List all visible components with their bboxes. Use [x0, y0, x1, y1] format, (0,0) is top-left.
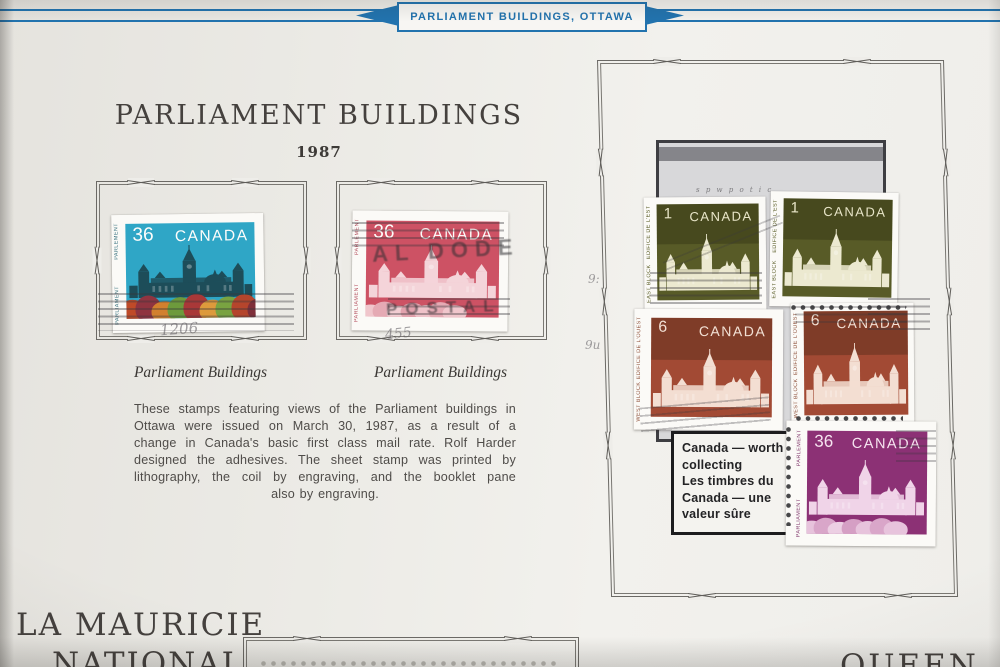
border-ornament-x — [505, 634, 531, 643]
border-ornament-x — [941, 149, 951, 175]
stamp-inscription-bottom: PARLIAMENT — [797, 498, 803, 537]
border-ornament-x — [472, 178, 498, 187]
album-frame-bottom — [243, 637, 579, 667]
stamp-denomination: 1 — [790, 199, 799, 216]
border-ornament-x — [472, 334, 498, 343]
description-line: These stamps featuring views of the Parl… — [134, 401, 516, 418]
trees-illustration — [807, 508, 928, 535]
next-section-title-line2: NATIONAL — [52, 646, 244, 667]
stamp-inscription-top: ÉDIFICE DE L'EST — [647, 205, 653, 259]
border-ornament-x — [128, 334, 154, 343]
parliament-building-illustration — [806, 343, 906, 412]
border-ornament-x — [885, 591, 911, 600]
faint-cancel-text: s p w p o t i c — [696, 186, 773, 194]
stamp-inscription-bottom: PARLIAMENT — [355, 283, 361, 322]
description-paragraph: These stamps featuring views of the Parl… — [134, 401, 516, 502]
border-ornament-x — [596, 149, 606, 175]
border-ornament-x — [232, 334, 258, 343]
border-ornament-x — [654, 57, 680, 66]
stamp-caption-1: Parliament Buildings — [96, 364, 305, 382]
border-ornament-x — [948, 433, 958, 459]
stamp-inscription-top: PARLEMENT — [797, 429, 803, 466]
border-ornament-x — [599, 288, 609, 314]
border-ornament-x — [93, 247, 102, 273]
stamp-inscription-top: ÉDIFICE DE L'OUEST — [637, 317, 643, 380]
border-ornament-x — [294, 634, 320, 643]
stamp-denomination: 36 — [814, 432, 833, 452]
border-ornament-x — [542, 247, 551, 273]
stamp-country: CANADA — [689, 209, 752, 225]
description-line: also by engraving. — [134, 486, 516, 503]
stamp-perforation-dots — [260, 660, 560, 667]
description-line: change in Canada's basic first class mai… — [134, 435, 516, 452]
stamp-denomination: 36 — [132, 224, 153, 246]
stamp-1c-east-block-b: ÉDIFICE DE L'EST EAST BLOCK 1 CANADA — [769, 191, 899, 308]
pencil-note: 1206 — [159, 319, 198, 340]
stamp-album-page-photo: PARLIAMENT BUILDINGS, OTTAWA PARLIAMENT … — [0, 0, 1000, 667]
section-year: 1987 — [99, 143, 539, 161]
stamp-perforation-dots — [785, 426, 792, 526]
stamp-denomination: 6 — [658, 319, 667, 337]
parliament-building-illustration — [785, 229, 891, 295]
stamp-country: CANADA — [823, 204, 886, 220]
stamp-country: CANADA — [175, 227, 249, 246]
stamp-country: CANADA — [699, 323, 766, 339]
page-header-banner: PARLIAMENT BUILDINGS, OTTAWA — [397, 2, 647, 32]
border-ornament-x — [128, 178, 154, 187]
stamp-inscription-bottom: WEST BLOCK — [794, 379, 800, 419]
postmark-text: POSTAL — [386, 296, 502, 320]
stamp-denomination: 1 — [664, 205, 672, 222]
border-ornament-x — [333, 247, 342, 273]
stamp-perforation-dots — [795, 415, 903, 422]
stamp-inscription-bottom: EAST BLOCK — [772, 260, 778, 299]
stamp-imprint: 1 CANADA — [782, 198, 892, 298]
page-header-title: PARLIAMENT BUILDINGS, OTTAWA — [410, 11, 634, 23]
stamp-inscription-top: PARLEMENT — [114, 223, 120, 260]
border-ornament-x — [944, 288, 954, 314]
border-ornament-x — [689, 591, 715, 600]
description-line: designed the adhesives. The sheet stamp … — [134, 452, 516, 469]
border-ornament-x — [844, 57, 870, 66]
postmark-bars — [650, 272, 762, 304]
section-title: PARLIAMENT BUILDINGS — [99, 100, 539, 131]
next-section-title-line1: LA MAURICIE — [16, 607, 265, 643]
border-ornament-x — [368, 178, 394, 187]
border-ornament-x — [603, 433, 613, 459]
stamp-caption-2: Parliament Buildings — [336, 364, 545, 382]
border-ornament-x — [232, 178, 258, 187]
pencil-note: 9u — [585, 338, 600, 352]
description-line: Ottawa were issued on March 30, 1987, as… — [134, 418, 516, 435]
postmark-bars — [896, 430, 936, 464]
description-line: lithography, the coil by engraving, and … — [134, 469, 516, 486]
pencil-note: 9: — [588, 272, 600, 286]
postmark-bars — [795, 306, 907, 328]
queen-section-title: QUEEN — [840, 648, 979, 667]
border-ornament-x — [302, 247, 311, 273]
pencil-note: 455 — [384, 325, 412, 344]
